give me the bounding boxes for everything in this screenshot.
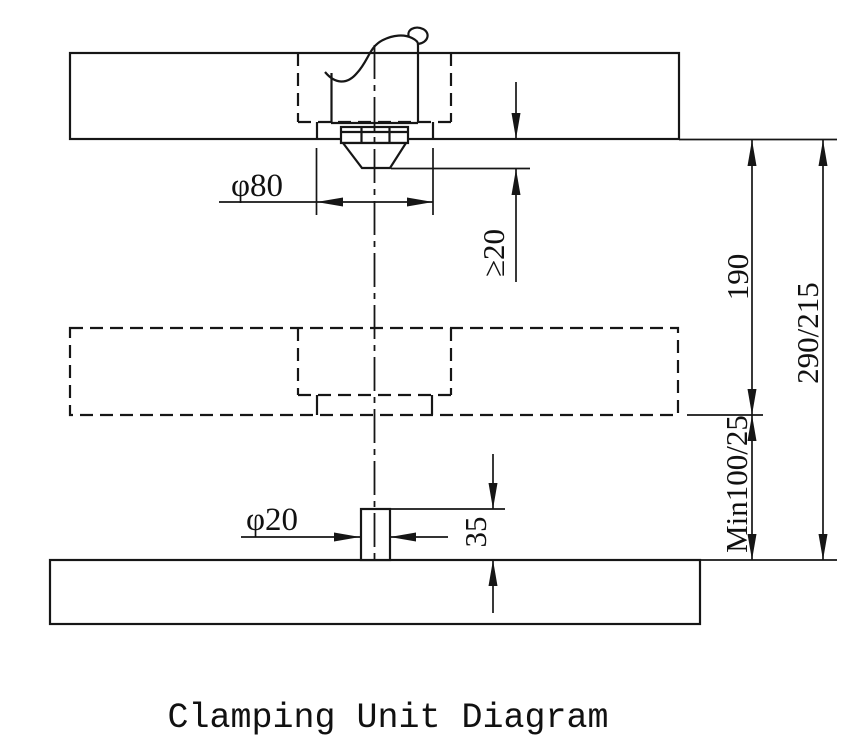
phi80-label: φ80 xyxy=(231,168,283,204)
dimmin100-label: Min100/25 xyxy=(719,415,754,553)
dim-lower-clearance: Min100/25 xyxy=(719,415,757,560)
dim290-label: 290/215 xyxy=(790,282,825,384)
dim35-label: 35 xyxy=(458,517,493,548)
ge20-label: ≥20 xyxy=(476,229,511,277)
ejector-pin xyxy=(361,509,390,560)
clamping-unit-drawing: φ80 ≥20 190 290/215 Min100/25 35 xyxy=(0,0,859,745)
drawing-background xyxy=(0,0,859,745)
phi20-label: φ20 xyxy=(246,502,298,538)
drawing-title: Clamping Unit Diagram xyxy=(167,698,608,738)
clamping-unit-diagram-page: φ80 ≥20 190 290/215 Min100/25 35 xyxy=(0,0,859,745)
dim190-label: 190 xyxy=(720,254,755,301)
